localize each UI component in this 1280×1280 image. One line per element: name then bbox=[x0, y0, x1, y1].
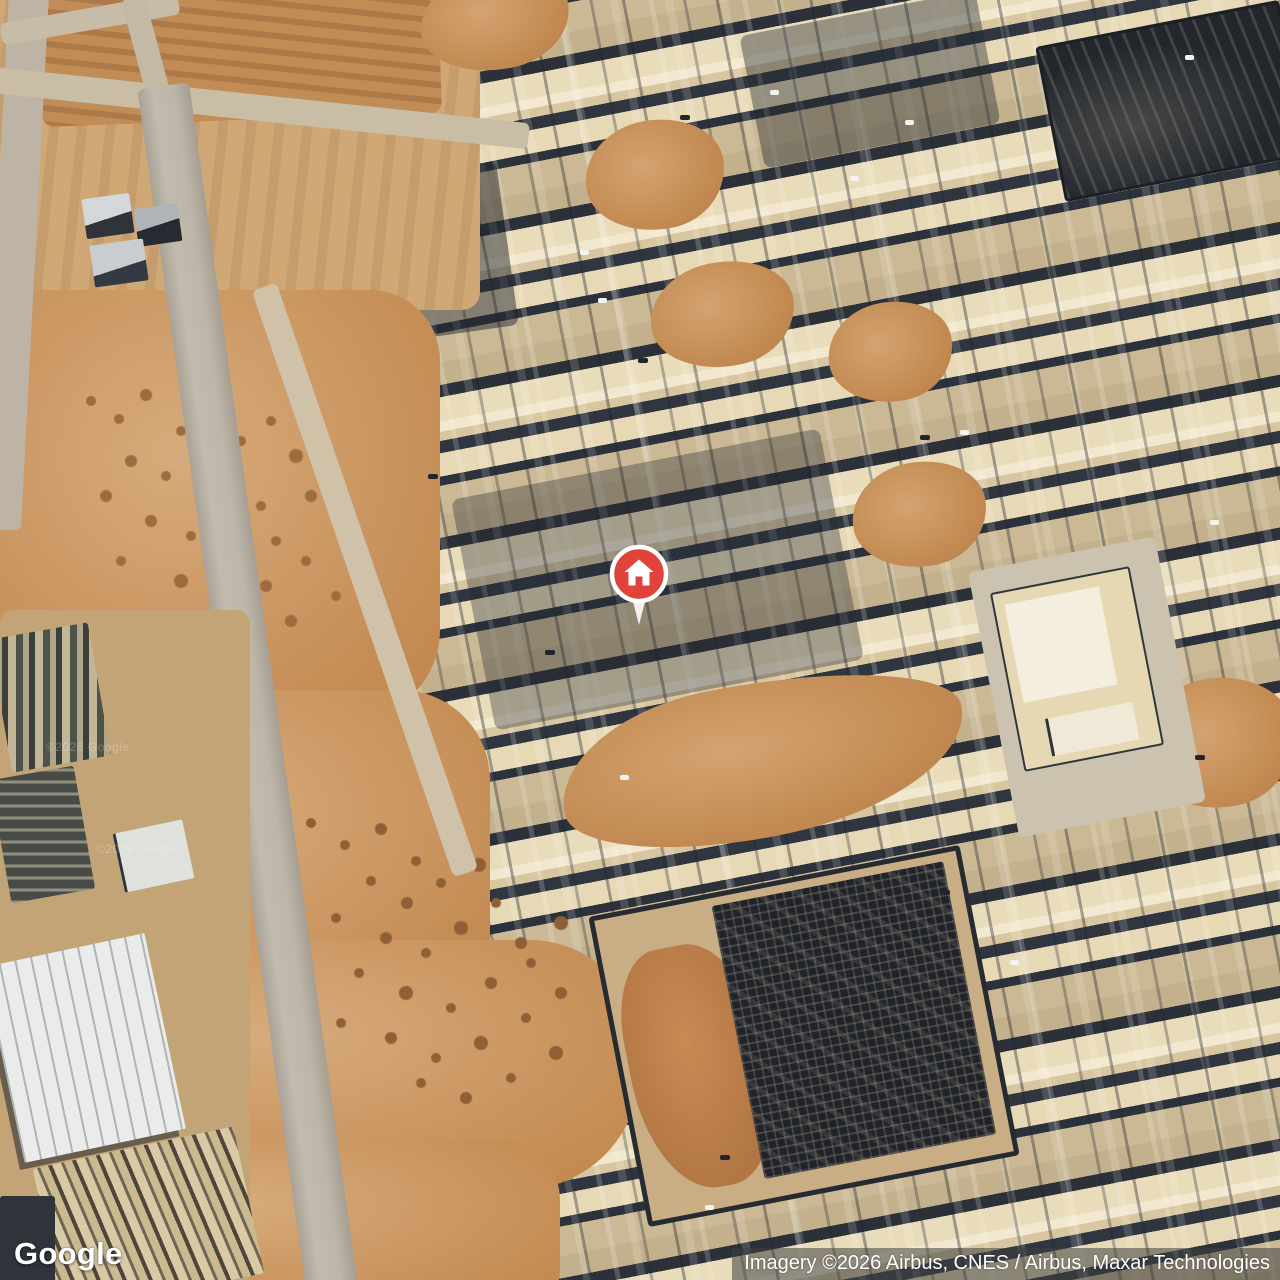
place-marker[interactable] bbox=[608, 544, 670, 630]
dirt-piles bbox=[86, 396, 96, 406]
google-logo[interactable]: Google bbox=[14, 1236, 123, 1272]
vehicles-white bbox=[598, 298, 607, 303]
shed bbox=[89, 238, 148, 287]
attribution-bar: Imagery ©2026 Airbus, CNES / Airbus, Max… bbox=[732, 1248, 1280, 1280]
building-annex bbox=[1045, 702, 1140, 756]
vehicles-dark bbox=[638, 358, 648, 363]
shed bbox=[81, 193, 134, 239]
dirt-piles bbox=[306, 818, 316, 828]
attribution-text: Imagery ©2026 Airbus, CNES / Airbus, Max… bbox=[744, 1252, 1270, 1275]
watermark: ©2026 Google bbox=[46, 740, 130, 754]
watermark: ©2026 Google bbox=[96, 842, 180, 856]
building-roof bbox=[1004, 586, 1117, 702]
map-canvas[interactable]: ©2026 Google ©2026 Google Google Imagery… bbox=[0, 0, 1280, 1280]
